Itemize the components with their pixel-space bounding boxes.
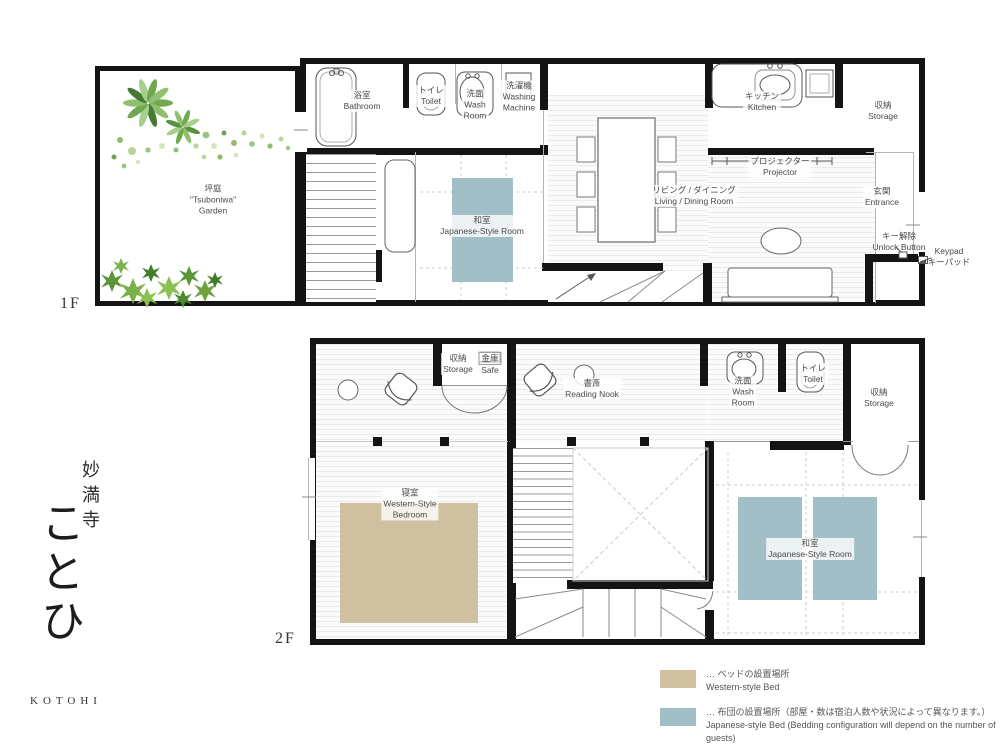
floor-label-2f: 2F [275,630,296,648]
shoe-counter-icon [385,160,415,252]
label-living-dining: リビング / ダイニングLiving / Dining Room [650,185,738,207]
label-entrance: 玄関Entrance [863,186,901,208]
floor-plan-sheet: 坪庭"Tsuboniwa"Garden 浴室Bathroom トイレToilet… [0,0,1000,750]
brand-logo-calligraphy: ことひ [26,500,90,647]
label-projector: プロジェクターProjector [748,156,811,178]
brand-romanized: KOTOHI [30,695,102,707]
label-keypad: Keypadキーパッド [926,246,972,268]
label-kitchen: キッチンKitchen [743,91,781,113]
label-wash-1f: 洗面WashRoom [462,88,489,121]
western-bed-swatch [660,670,696,688]
legend-leader: … [706,669,715,679]
stair-direction-arrow [556,273,596,299]
legend-western-en: Western-style Bed [706,682,779,692]
armchair-icon [381,370,421,409]
dining-set-icon [577,118,676,242]
legend: … ベッドの設置場所 Western-style Bed … 布団の設置場所（部… [660,668,1000,750]
legend-japanese-jp: 布団の設置場所（部屋・数は宿泊人数や状況によって異なります。） [718,707,991,717]
legend-leader: … [706,707,715,717]
side-table-icon [338,380,358,400]
label-garden: 坪庭"Tsuboniwa"Garden [188,183,238,216]
label-washitsu-2f: 和室Japanese-Style Room [766,538,854,560]
label-wash-2f: 洗面WashRoom [730,375,757,408]
label-storage-1f: 収納Storage [866,100,900,122]
label-toilet-2f: トイレToilet [798,363,828,385]
closet-doors-icon [442,386,507,413]
maple-leaves-icon [101,258,223,308]
coffee-table-icon [761,228,801,254]
label-bedroom: 寝室Western-StyleBedroom [381,487,438,520]
label-bathroom: 浴室Bathroom [342,90,383,112]
fan-stairs-2f [515,589,706,637]
legend-western-bed: … ベッドの設置場所 Western-style Bed [660,668,1000,694]
label-unlock-button: キー解除Unlock Button [871,231,928,253]
armchair-icon [520,360,560,399]
label-storage-2f-b: 収納Storage [862,387,896,409]
stove-icon [806,70,833,97]
legend-japanese-en: Japanese-style Bed (Bedding configuratio… [706,720,996,743]
door-arc-icon [697,591,713,609]
label-toilet-1f: トイレToilet [416,85,446,107]
sofa-icon [722,268,838,302]
label-washitsu-1f: 和室Japanese-Style Room [438,215,526,237]
label-washing-machine: 洗濯機WashingMachine [501,80,538,113]
atrium-x-marks [573,448,708,581]
legend-western-jp: ベッドの設置場所 [718,669,790,679]
label-reading-nook: 書斎Reading Nook [563,378,621,400]
label-safe: 金庫Safe [476,352,503,376]
floor-label-1f: 1F [60,295,81,313]
winder-stair-lines [600,271,703,302]
storage-doors-icon [852,445,908,475]
label-storage-2f-a: 収納Storage [441,353,475,375]
legend-japanese-bed: … 布団の設置場所（部屋・数は宿泊人数や状況によって異なります。） Japane… [660,706,1000,745]
bed-2f [340,503,478,623]
japanese-bed-swatch [660,708,696,726]
